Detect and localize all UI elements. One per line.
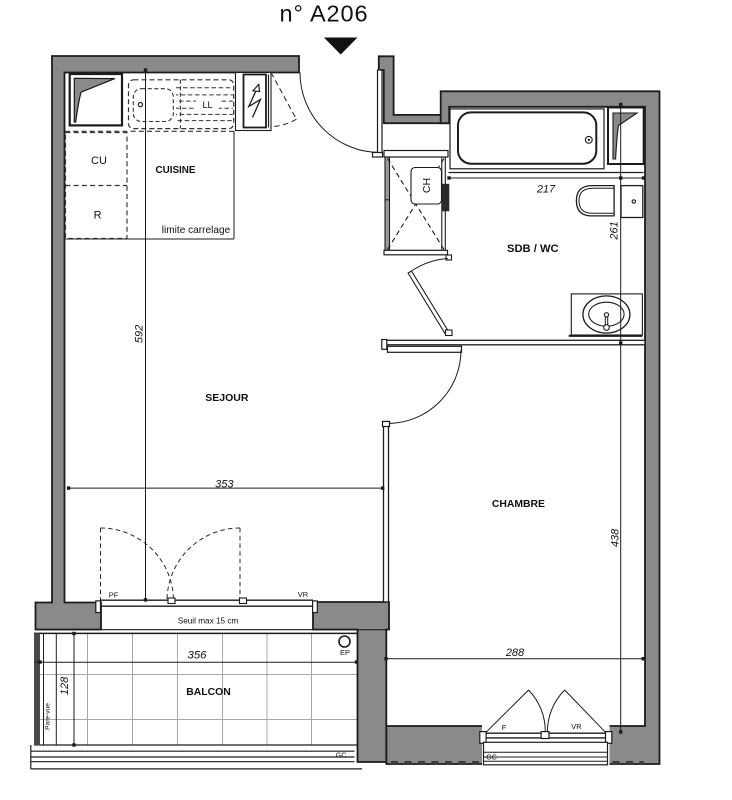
svg-text:VR: VR (298, 590, 309, 599)
svg-text:128: 128 (59, 676, 71, 695)
svg-text:BALCON: BALCON (186, 687, 230, 698)
svg-text:EP: EP (340, 648, 350, 657)
svg-text:261: 261 (609, 221, 621, 240)
svg-text:CH: CH (421, 178, 433, 193)
svg-text:353: 353 (215, 478, 234, 490)
svg-text:CUISINE: CUISINE (155, 165, 195, 176)
svg-text:438: 438 (610, 528, 622, 547)
svg-text:356: 356 (187, 650, 207, 662)
svg-text:PF: PF (109, 590, 119, 599)
svg-text:Pare-vue: Pare-vue (45, 703, 52, 730)
svg-text:CHAMBRE: CHAMBRE (492, 499, 545, 510)
svg-text:Seuil max 15 cm: Seuil max 15 cm (178, 616, 239, 625)
svg-text:288: 288 (505, 647, 525, 659)
svg-text:CU: CU (91, 155, 107, 167)
svg-text:LL: LL (202, 100, 212, 110)
svg-text:VR: VR (571, 722, 582, 731)
svg-text:SEJOUR: SEJOUR (205, 392, 249, 404)
svg-text:GC: GC (486, 755, 497, 762)
svg-text:217: 217 (536, 183, 556, 195)
svg-text:SDB / WC: SDB / WC (507, 243, 559, 255)
svg-text:592: 592 (134, 325, 146, 343)
svg-text:R: R (94, 210, 102, 222)
svg-text:limite carrelage: limite carrelage (162, 225, 231, 236)
svg-text:F: F (502, 723, 507, 732)
svg-text:n° A206: n° A206 (280, 0, 369, 26)
svg-text:GC: GC (336, 753, 347, 760)
